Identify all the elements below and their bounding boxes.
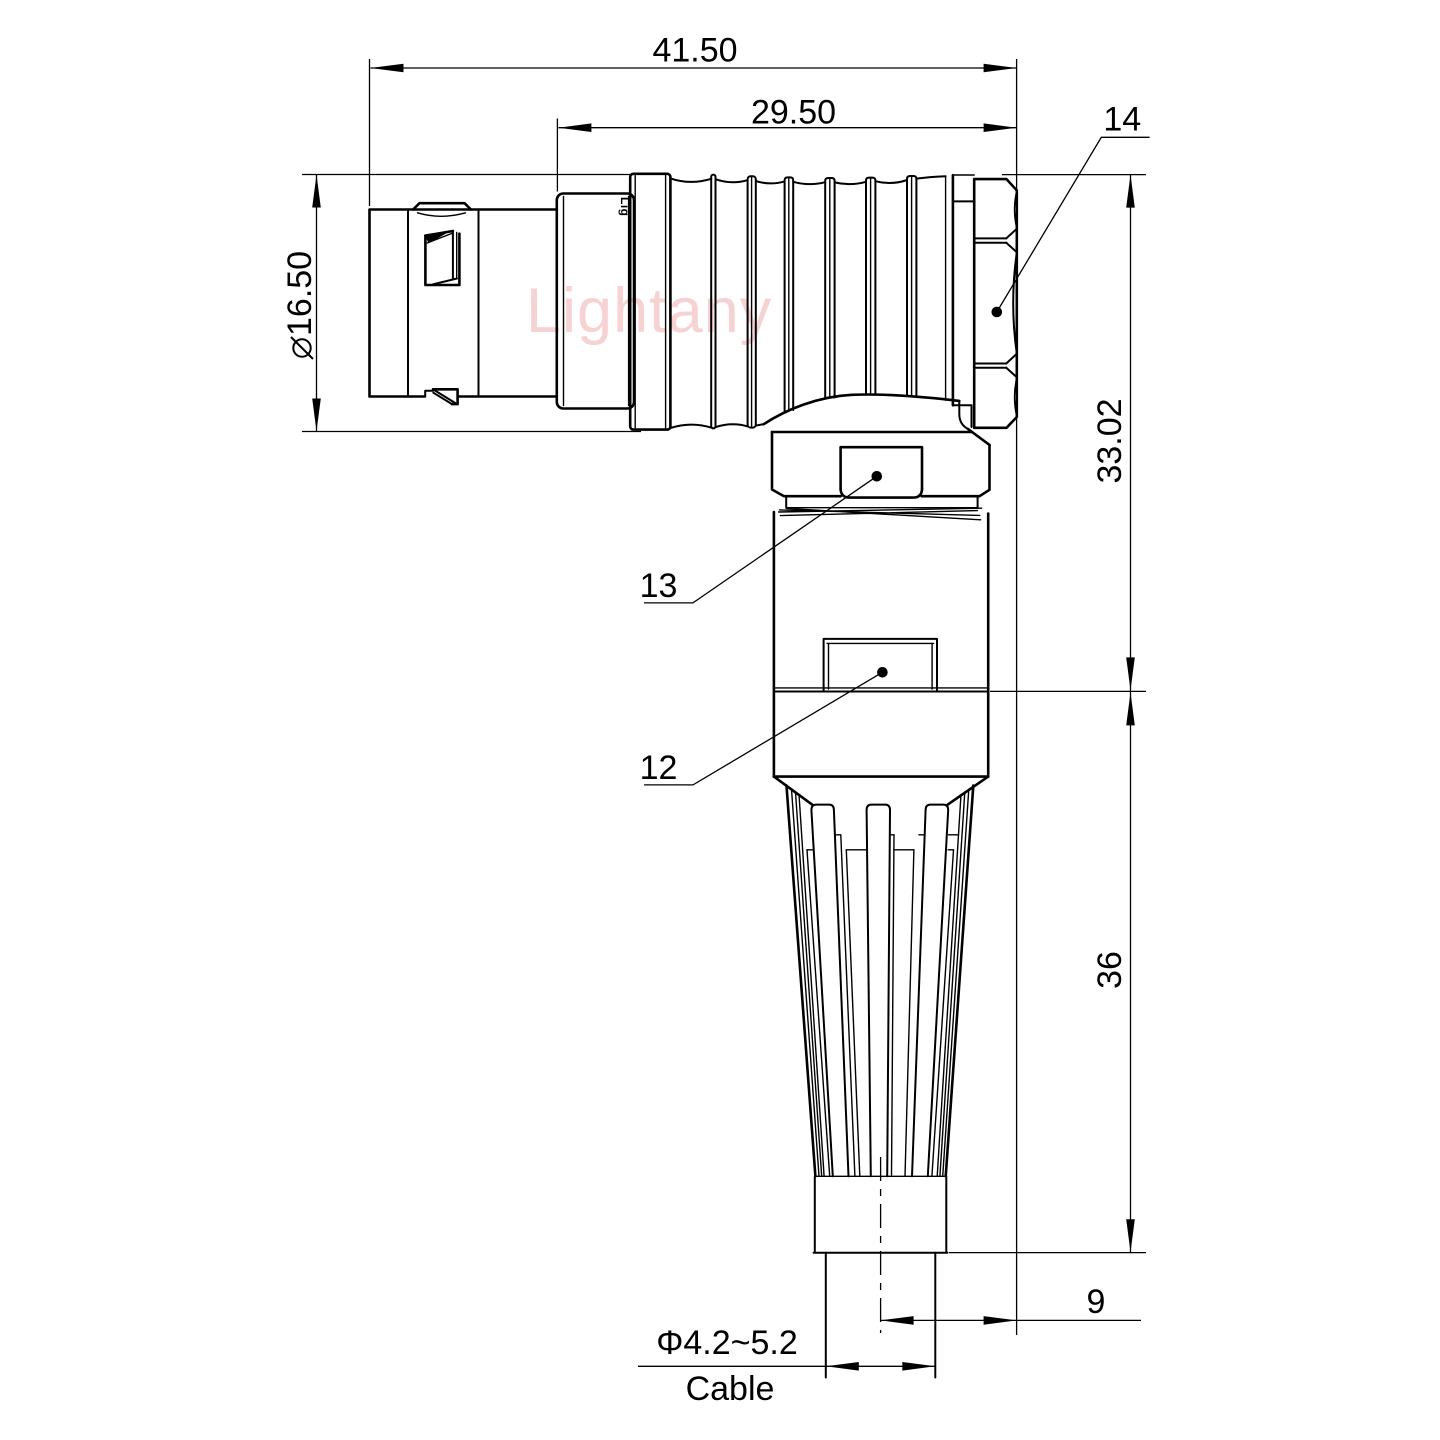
svg-text:36: 36: [1091, 951, 1129, 989]
svg-text:9: 9: [1087, 1283, 1106, 1321]
svg-text:14: 14: [1103, 101, 1141, 139]
svg-text:Φ4.2~5.2: Φ4.2~5.2: [656, 1324, 798, 1362]
svg-text:Cable: Cable: [686, 1370, 775, 1408]
svg-text:33.02: 33.02: [1091, 398, 1129, 483]
svg-text:41.50: 41.50: [652, 32, 737, 70]
svg-text:12: 12: [640, 749, 678, 787]
svg-text:29.50: 29.50: [751, 94, 836, 132]
svg-text:13: 13: [640, 567, 678, 605]
svg-text:16.50: 16.50: [281, 251, 319, 336]
